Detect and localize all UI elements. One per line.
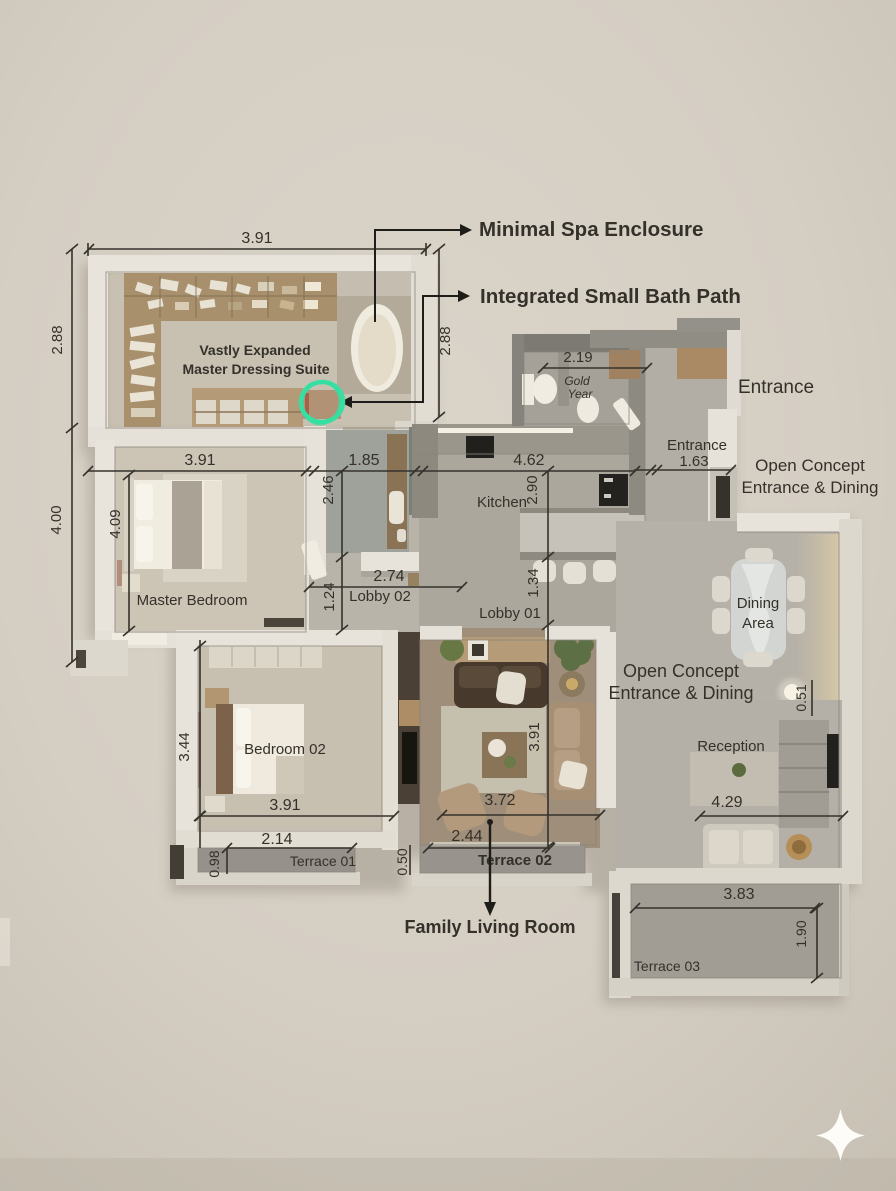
svg-text:Family Living Room: Family Living Room [404,917,575,937]
svg-text:Open Concept: Open Concept [623,661,739,681]
svg-text:Area: Area [742,615,774,632]
svg-text:Terrace 03: Terrace 03 [634,958,700,974]
svg-text:0.50: 0.50 [394,848,410,875]
svg-text:1.90: 1.90 [793,920,809,947]
svg-text:Entrance: Entrance [667,437,727,454]
svg-text:Lobby 01: Lobby 01 [479,605,541,622]
svg-text:Master Dressing Suite: Master Dressing Suite [182,361,329,377]
svg-text:Entrance: Entrance [738,377,814,398]
svg-text:Vastly Expanded: Vastly Expanded [199,342,310,358]
svg-text:1.85: 1.85 [348,452,379,469]
svg-text:3.83: 3.83 [723,886,754,903]
svg-text:2.44: 2.44 [451,828,482,845]
svg-text:4.62: 4.62 [513,452,544,469]
svg-text:2.88: 2.88 [49,325,66,354]
svg-text:2.74: 2.74 [373,568,404,585]
svg-text:2.88: 2.88 [437,326,454,355]
svg-text:Lobby 02: Lobby 02 [349,588,411,605]
svg-text:Open Concept: Open Concept [755,456,865,475]
svg-text:Entrance & Dining: Entrance & Dining [741,478,878,497]
svg-text:3.91: 3.91 [241,230,272,247]
svg-text:Dining: Dining [737,595,780,612]
svg-text:1.63: 1.63 [679,453,708,470]
svg-text:Year: Year [568,387,594,401]
svg-text:0.98: 0.98 [206,850,222,877]
svg-text:2.46: 2.46 [320,475,337,504]
svg-text:3.72: 3.72 [484,792,515,809]
svg-text:Entrance & Dining: Entrance & Dining [608,683,753,703]
svg-text:Minimal Spa Enclosure: Minimal Spa Enclosure [479,218,703,241]
svg-text:2.14: 2.14 [261,831,292,848]
svg-text:3.91: 3.91 [269,797,300,814]
svg-text:Terrace 01: Terrace 01 [290,853,356,869]
svg-text:Kitchen: Kitchen [477,494,527,511]
svg-text:Integrated Small Bath Path: Integrated Small Bath Path [480,285,741,308]
svg-text:Bedroom 02: Bedroom 02 [244,741,326,758]
svg-text:4.09: 4.09 [107,509,124,538]
svg-text:1.34: 1.34 [525,568,542,597]
svg-text:4.29: 4.29 [711,794,742,811]
svg-text:0.51: 0.51 [793,684,809,711]
svg-text:4.00: 4.00 [48,505,65,534]
svg-text:3.91: 3.91 [184,452,215,469]
svg-text:Reception: Reception [697,738,765,755]
svg-text:Gold: Gold [564,374,590,388]
svg-text:2.19: 2.19 [563,349,592,366]
svg-text:3.91: 3.91 [526,722,543,751]
svg-text:3.44: 3.44 [176,732,193,761]
svg-text:Master Bedroom: Master Bedroom [137,592,248,609]
